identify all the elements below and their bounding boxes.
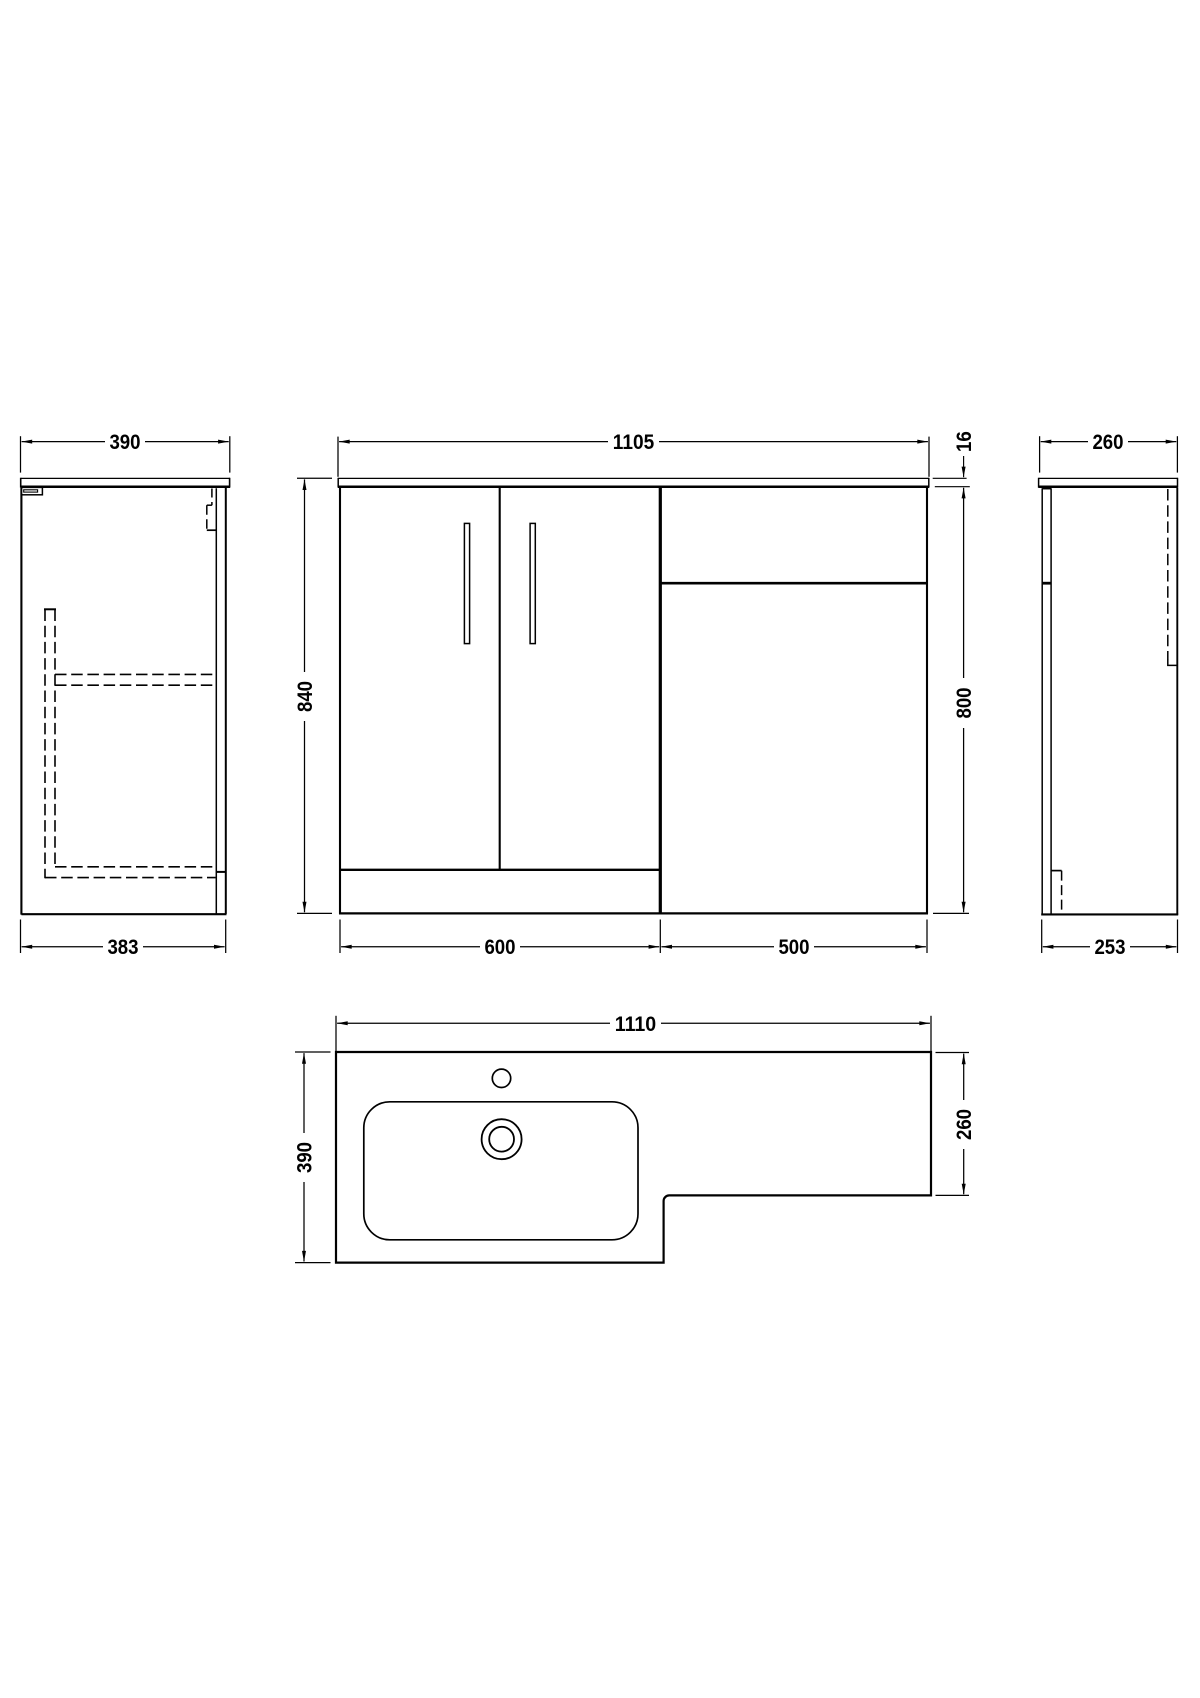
svg-text:260: 260 [1092, 431, 1123, 454]
svg-text:260: 260 [953, 1109, 976, 1140]
svg-text:800: 800 [953, 687, 976, 718]
svg-text:383: 383 [107, 936, 138, 959]
svg-text:500: 500 [778, 936, 809, 959]
svg-text:16: 16 [953, 431, 976, 452]
svg-text:390: 390 [109, 431, 140, 454]
svg-text:253: 253 [1094, 936, 1125, 959]
svg-text:600: 600 [484, 936, 515, 959]
svg-text:390: 390 [293, 1142, 316, 1173]
svg-text:840: 840 [294, 681, 317, 712]
svg-text:1110: 1110 [615, 1013, 656, 1036]
svg-text:1105: 1105 [613, 431, 655, 454]
